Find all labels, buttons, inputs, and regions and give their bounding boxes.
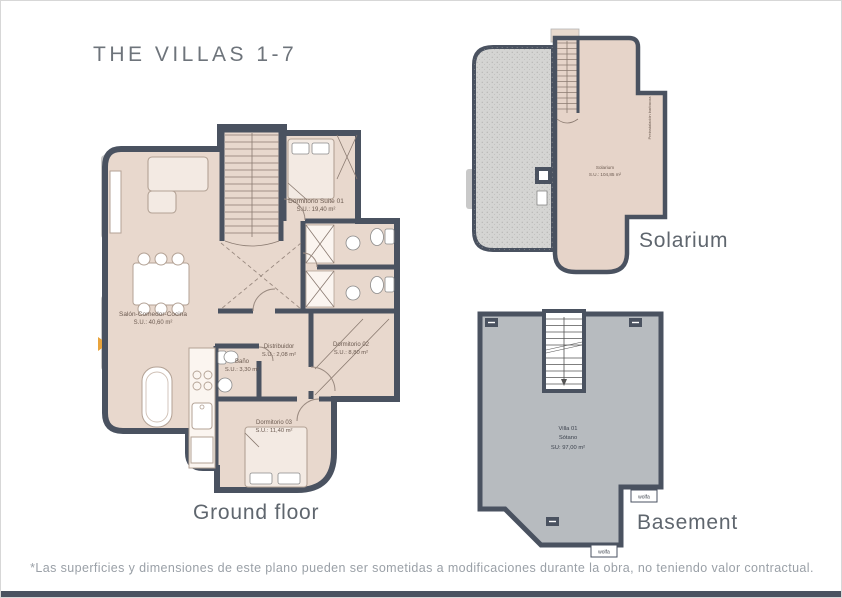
room-label-dormitorio02: Dormitorio 02 bbox=[333, 342, 370, 348]
bedroom03 bbox=[245, 427, 307, 487]
oven bbox=[191, 437, 213, 463]
solarium-title: Solarium bbox=[639, 229, 728, 253]
wolfa-label: wolfa bbox=[638, 495, 650, 501]
room-label-salon: Salón-Comedor-Cocina bbox=[119, 311, 187, 318]
svg-text:S.U.: 2,08 m²: S.U.: 2,08 m² bbox=[262, 352, 296, 358]
bottom-bar bbox=[1, 591, 842, 597]
svg-text:S.U.: 40,60 m²: S.U.: 40,60 m² bbox=[134, 320, 173, 326]
page-title: THE VILLAS 1-7 bbox=[93, 43, 297, 67]
ground-floor-plan: Salón-Comedor-Cocina S.U.: 40,60 m² Dorm… bbox=[96, 119, 408, 497]
kitchen-sink bbox=[192, 403, 212, 429]
svg-text:S.U.: 104,85 m²: S.U.: 104,85 m² bbox=[589, 172, 622, 177]
svg-text:S.U.: 8,80 m²: S.U.: 8,80 m² bbox=[334, 350, 368, 356]
dining-table bbox=[133, 263, 189, 305]
room-label-solarium: Solarium bbox=[596, 165, 614, 170]
wolfa-label: wolfa bbox=[598, 550, 610, 556]
room-label-bano: Baño bbox=[235, 359, 250, 365]
sink bbox=[346, 286, 360, 300]
tiled-deck bbox=[474, 47, 553, 250]
room-label-dormitorio03: Dormitorio 03 bbox=[256, 420, 293, 426]
vertical-note: Preinstalación barbacoa bbox=[647, 96, 652, 140]
disclaimer-text: *Las superficies y dimensiones de este p… bbox=[1, 561, 842, 575]
svg-text:S.U.: 3,30 m²: S.U.: 3,30 m² bbox=[225, 367, 259, 373]
kitchen bbox=[189, 348, 215, 468]
toilet-bowl bbox=[371, 277, 384, 294]
bathtub bbox=[142, 367, 172, 427]
svg-text:SU: 97,00 m²: SU: 97,00 m² bbox=[551, 445, 585, 451]
svg-text:Sótano: Sótano bbox=[559, 435, 577, 441]
sink bbox=[346, 236, 360, 250]
ground-floor-title: Ground floor bbox=[193, 501, 319, 525]
toilet-tank bbox=[385, 277, 394, 292]
floorplan-sheet: THE VILLAS 1-7 bbox=[0, 0, 842, 598]
toilet-bowl bbox=[371, 229, 384, 246]
room-label-suite01: Dormitorio Suite 01 bbox=[288, 198, 344, 205]
toilet-tank bbox=[385, 229, 394, 244]
room-label-distribuidor: Distribuidor bbox=[264, 344, 294, 350]
sofa-chaise bbox=[148, 191, 176, 213]
basement-stairs bbox=[544, 311, 584, 391]
svg-text:S.U.: 11,40 m²: S.U.: 11,40 m² bbox=[256, 428, 293, 434]
sofa bbox=[148, 157, 208, 191]
tv-unit bbox=[110, 171, 121, 233]
sink bbox=[218, 378, 232, 392]
room-label-villa: Villa 01 bbox=[559, 426, 578, 432]
basement-title: Basement bbox=[637, 511, 738, 535]
svg-text:S.U.: 19,40 m²: S.U.: 19,40 m² bbox=[297, 207, 336, 213]
